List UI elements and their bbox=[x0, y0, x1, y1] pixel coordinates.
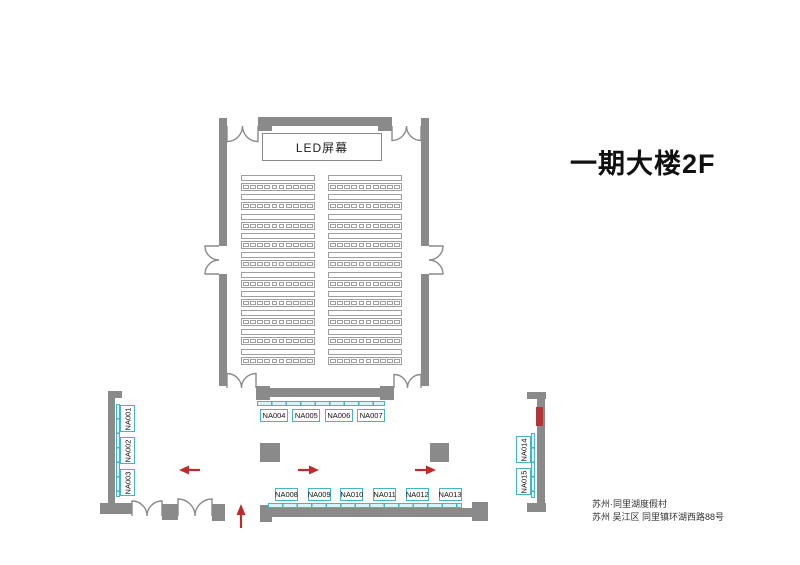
booth-na010: NA010 bbox=[340, 488, 363, 501]
booth-na011: NA011 bbox=[373, 488, 396, 501]
chair bbox=[264, 243, 270, 247]
chair bbox=[366, 185, 372, 189]
hall-wall-top-cap-right bbox=[378, 117, 392, 131]
chair bbox=[257, 204, 263, 208]
chair bbox=[373, 339, 379, 343]
chair bbox=[250, 224, 256, 228]
door-right-middle bbox=[429, 246, 443, 274]
chair bbox=[250, 262, 256, 266]
chair bbox=[300, 282, 306, 286]
chair bbox=[264, 224, 270, 228]
chair bbox=[286, 262, 292, 266]
chair bbox=[293, 359, 299, 363]
chair bbox=[300, 224, 306, 228]
chair bbox=[264, 282, 270, 286]
chair bbox=[394, 359, 400, 363]
chair bbox=[293, 185, 299, 189]
door-top-right bbox=[392, 126, 421, 141]
chair bbox=[279, 185, 285, 189]
chair bbox=[293, 320, 299, 324]
chair bbox=[380, 262, 386, 266]
chair bbox=[373, 282, 379, 286]
seat-table bbox=[241, 194, 315, 200]
chair bbox=[366, 301, 372, 305]
chair bbox=[380, 320, 386, 324]
seat-table bbox=[328, 329, 402, 335]
chair-row bbox=[328, 337, 402, 345]
hall-wall-right-lower bbox=[421, 274, 429, 386]
chair bbox=[344, 185, 350, 189]
chair bbox=[359, 301, 365, 305]
chair bbox=[286, 301, 292, 305]
chair bbox=[307, 243, 313, 247]
chair bbox=[279, 359, 285, 363]
chair-row bbox=[328, 241, 402, 249]
booth-strip-right bbox=[531, 433, 535, 498]
chair bbox=[300, 204, 306, 208]
chair bbox=[344, 339, 350, 343]
concourse-left-wall-cap bbox=[108, 391, 122, 398]
chair bbox=[380, 301, 386, 305]
chair bbox=[387, 320, 393, 324]
chair bbox=[279, 243, 285, 247]
chair bbox=[359, 320, 365, 324]
chair bbox=[286, 320, 292, 324]
chair bbox=[272, 204, 278, 208]
chair bbox=[293, 262, 299, 266]
door-bottom-right bbox=[394, 375, 421, 389]
chair bbox=[337, 339, 343, 343]
chair bbox=[307, 359, 313, 363]
bottom-wall-long bbox=[272, 508, 472, 517]
arrow-left-icon bbox=[179, 466, 200, 475]
booth-strip-top bbox=[257, 401, 385, 406]
chair bbox=[373, 204, 379, 208]
chair-row bbox=[241, 222, 315, 230]
seat-table bbox=[241, 175, 315, 181]
seat-table bbox=[328, 252, 402, 258]
chair bbox=[293, 204, 299, 208]
chair bbox=[344, 359, 350, 363]
chair bbox=[286, 339, 292, 343]
led-screen-label: LED屏幕 bbox=[296, 139, 348, 156]
arrow-right-icon bbox=[298, 466, 319, 475]
chair bbox=[272, 282, 278, 286]
seat-table bbox=[241, 329, 315, 335]
chair bbox=[286, 282, 292, 286]
hall-wall-bottom-cap-left bbox=[256, 386, 270, 400]
chair bbox=[307, 224, 313, 228]
chair bbox=[351, 185, 357, 189]
chair bbox=[394, 243, 400, 247]
chair bbox=[300, 301, 306, 305]
chair bbox=[293, 339, 299, 343]
seat-table bbox=[241, 252, 315, 258]
chair bbox=[394, 262, 400, 266]
chair-row bbox=[328, 222, 402, 230]
seat-table bbox=[241, 214, 315, 220]
seat-table bbox=[328, 214, 402, 220]
chair bbox=[380, 282, 386, 286]
chair bbox=[250, 204, 256, 208]
chair bbox=[351, 282, 357, 286]
booth-na014: NA014 bbox=[516, 436, 531, 463]
chair bbox=[300, 359, 306, 363]
chair bbox=[293, 243, 299, 247]
chair bbox=[337, 320, 343, 324]
chair bbox=[272, 224, 278, 228]
chair bbox=[286, 204, 292, 208]
chair bbox=[366, 339, 372, 343]
chair bbox=[394, 301, 400, 305]
chair bbox=[380, 204, 386, 208]
chair bbox=[351, 320, 357, 324]
chair bbox=[366, 243, 372, 247]
chair bbox=[344, 204, 350, 208]
chair bbox=[330, 204, 336, 208]
chair bbox=[380, 339, 386, 343]
chair bbox=[387, 224, 393, 228]
chair-row bbox=[241, 260, 315, 268]
chair bbox=[257, 339, 263, 343]
chair bbox=[366, 262, 372, 266]
hall-wall-left-upper bbox=[219, 118, 227, 246]
chair bbox=[257, 224, 263, 228]
chair bbox=[272, 243, 278, 247]
bottom-wall-end-block bbox=[472, 502, 488, 521]
chair-row bbox=[328, 280, 402, 288]
booth-na002: NA002 bbox=[120, 437, 135, 464]
door-bottom-left bbox=[227, 374, 256, 389]
chair-row bbox=[328, 260, 402, 268]
chair bbox=[300, 320, 306, 324]
chair bbox=[307, 320, 313, 324]
chair bbox=[286, 185, 292, 189]
chair bbox=[293, 301, 299, 305]
chair bbox=[330, 282, 336, 286]
chair bbox=[307, 301, 313, 305]
address-line-2: 苏州 吴江区 同里镇环湖西路88号 bbox=[592, 511, 724, 524]
chair-row bbox=[241, 357, 315, 365]
chair bbox=[394, 339, 400, 343]
chair bbox=[257, 359, 263, 363]
seat-table bbox=[328, 194, 402, 200]
hall-wall-bottom bbox=[256, 388, 394, 397]
chair-row bbox=[328, 202, 402, 210]
led-screen: LED屏幕 bbox=[262, 133, 382, 161]
chair bbox=[307, 262, 313, 266]
chair bbox=[359, 204, 365, 208]
seat-table bbox=[328, 233, 402, 239]
chair bbox=[243, 185, 249, 189]
door-top-left bbox=[227, 126, 258, 142]
chair bbox=[293, 282, 299, 286]
chair bbox=[394, 204, 400, 208]
chair bbox=[380, 224, 386, 228]
chair bbox=[337, 262, 343, 266]
seat-table bbox=[328, 310, 402, 316]
chair bbox=[272, 320, 278, 324]
chair bbox=[300, 262, 306, 266]
seat-table bbox=[241, 291, 315, 297]
address-block: 苏州·同里湖度假村 苏州 吴江区 同里镇环湖西路88号 bbox=[592, 498, 724, 524]
address-line-1: 苏州·同里湖度假村 bbox=[592, 498, 724, 511]
chair bbox=[366, 224, 372, 228]
bottom-wall-step bbox=[212, 504, 225, 521]
chair bbox=[272, 262, 278, 266]
chair-row bbox=[241, 280, 315, 288]
chair bbox=[330, 224, 336, 228]
chair bbox=[387, 262, 393, 266]
chair bbox=[307, 204, 313, 208]
booth-na001: NA001 bbox=[120, 405, 135, 432]
chair bbox=[373, 301, 379, 305]
chair bbox=[337, 301, 343, 305]
chair bbox=[351, 262, 357, 266]
chair bbox=[337, 243, 343, 247]
seat-table bbox=[241, 310, 315, 316]
chair bbox=[387, 359, 393, 363]
chair bbox=[293, 224, 299, 228]
chair bbox=[250, 243, 256, 247]
chair bbox=[387, 185, 393, 189]
chair bbox=[394, 224, 400, 228]
chair bbox=[373, 224, 379, 228]
chair bbox=[330, 320, 336, 324]
chair-row bbox=[241, 299, 315, 307]
chair bbox=[264, 320, 270, 324]
chair bbox=[366, 320, 372, 324]
bottom-wall-block-a bbox=[162, 504, 178, 520]
pillar-right bbox=[430, 443, 449, 462]
booth-na004: NA004 bbox=[260, 409, 288, 422]
chair bbox=[272, 359, 278, 363]
chair bbox=[366, 204, 372, 208]
chair bbox=[264, 339, 270, 343]
arrow-right-icon bbox=[415, 466, 436, 475]
chair bbox=[351, 359, 357, 363]
chair-row bbox=[241, 202, 315, 210]
chair bbox=[351, 243, 357, 247]
booth-na012: NA012 bbox=[406, 488, 429, 501]
chair bbox=[250, 282, 256, 286]
chair bbox=[359, 243, 365, 247]
door-concourse-a bbox=[132, 501, 162, 516]
chair bbox=[257, 320, 263, 324]
chair bbox=[387, 204, 393, 208]
chair bbox=[300, 243, 306, 247]
chair-row bbox=[241, 337, 315, 345]
chair bbox=[330, 359, 336, 363]
booth-na008: NA008 bbox=[275, 488, 298, 501]
chair bbox=[344, 282, 350, 286]
floor-plan: LED屏幕 NA001NA002NA003 NA004NA005NA006NA0… bbox=[0, 0, 800, 565]
hall-wall-right-upper bbox=[421, 118, 429, 246]
concourse-left-wall bbox=[108, 391, 115, 506]
chair bbox=[330, 262, 336, 266]
booth-na006: NA006 bbox=[325, 409, 353, 422]
red-wall-marker bbox=[536, 407, 543, 426]
booth-label: NA002 bbox=[123, 439, 132, 462]
seat-table bbox=[328, 175, 402, 181]
chair bbox=[380, 185, 386, 189]
chair-row bbox=[241, 241, 315, 249]
chair bbox=[250, 185, 256, 189]
chair bbox=[257, 243, 263, 247]
chair-row bbox=[328, 183, 402, 191]
booth-na013: NA013 bbox=[439, 488, 462, 501]
chair bbox=[337, 282, 343, 286]
seat-table bbox=[328, 349, 402, 355]
chair bbox=[380, 359, 386, 363]
chair bbox=[337, 359, 343, 363]
seat-table bbox=[328, 291, 402, 297]
booth-na009: NA009 bbox=[308, 488, 331, 501]
chair bbox=[286, 224, 292, 228]
chair bbox=[264, 204, 270, 208]
chair bbox=[250, 301, 256, 305]
seat-table bbox=[241, 272, 315, 278]
chair bbox=[250, 320, 256, 324]
chair bbox=[380, 243, 386, 247]
chair bbox=[307, 185, 313, 189]
chair bbox=[344, 301, 350, 305]
chair bbox=[330, 339, 336, 343]
hall-wall-top bbox=[258, 117, 392, 126]
booth-na005: NA005 bbox=[292, 409, 320, 422]
chair bbox=[330, 301, 336, 305]
concourse-left-wall-corner bbox=[100, 503, 132, 514]
seat-table bbox=[241, 349, 315, 355]
chair bbox=[359, 262, 365, 266]
chair bbox=[279, 320, 285, 324]
booth-label: NA003 bbox=[123, 471, 132, 494]
chair bbox=[257, 185, 263, 189]
hall-wall-bottom-cap-right bbox=[380, 386, 394, 400]
page-title: 一期大楼2F bbox=[570, 142, 716, 181]
chair bbox=[344, 243, 350, 247]
chair bbox=[359, 282, 365, 286]
chair bbox=[344, 262, 350, 266]
chair bbox=[264, 301, 270, 305]
chair bbox=[351, 301, 357, 305]
chair-row bbox=[328, 318, 402, 326]
chair bbox=[272, 185, 278, 189]
chair bbox=[366, 359, 372, 363]
chair bbox=[264, 262, 270, 266]
chair bbox=[373, 243, 379, 247]
chair bbox=[243, 262, 249, 266]
booth-na003: NA003 bbox=[120, 469, 135, 496]
chair bbox=[337, 224, 343, 228]
chair bbox=[279, 224, 285, 228]
concourse-right-wall-cap-bottom bbox=[527, 503, 546, 512]
chair bbox=[344, 224, 350, 228]
chair bbox=[243, 224, 249, 228]
chair bbox=[351, 224, 357, 228]
chair bbox=[394, 282, 400, 286]
chair bbox=[257, 301, 263, 305]
chair bbox=[279, 282, 285, 286]
chair bbox=[373, 359, 379, 363]
chair bbox=[264, 185, 270, 189]
chair bbox=[300, 339, 306, 343]
chair bbox=[387, 282, 393, 286]
chair bbox=[359, 359, 365, 363]
chair bbox=[279, 301, 285, 305]
chair bbox=[373, 185, 379, 189]
booth-label: NA015 bbox=[519, 470, 528, 493]
seat-table bbox=[328, 272, 402, 278]
booth-na007: NA007 bbox=[357, 409, 385, 422]
booth-label: NA001 bbox=[123, 407, 132, 430]
chair bbox=[394, 320, 400, 324]
chair bbox=[387, 301, 393, 305]
chair bbox=[394, 185, 400, 189]
chair-row bbox=[328, 357, 402, 365]
chair bbox=[359, 339, 365, 343]
arrow-up-icon bbox=[237, 504, 246, 528]
chair bbox=[243, 359, 249, 363]
chair bbox=[279, 204, 285, 208]
booth-na015: NA015 bbox=[516, 468, 531, 495]
chair bbox=[330, 243, 336, 247]
chair bbox=[337, 204, 343, 208]
chair bbox=[387, 339, 393, 343]
chair bbox=[243, 282, 249, 286]
chair bbox=[344, 320, 350, 324]
chair-row bbox=[328, 299, 402, 307]
chair bbox=[366, 282, 372, 286]
chair bbox=[272, 339, 278, 343]
chair bbox=[307, 339, 313, 343]
chair bbox=[264, 359, 270, 363]
chair bbox=[257, 262, 263, 266]
booth-strip-bottom bbox=[268, 503, 462, 508]
booth-label: NA014 bbox=[519, 438, 528, 461]
chair bbox=[279, 262, 285, 266]
chair bbox=[272, 301, 278, 305]
chair bbox=[250, 339, 256, 343]
chair bbox=[243, 243, 249, 247]
chair bbox=[351, 339, 357, 343]
hall-wall-left-lower bbox=[219, 274, 227, 386]
chair bbox=[243, 320, 249, 324]
chair bbox=[279, 339, 285, 343]
door-concourse-b bbox=[178, 499, 212, 516]
chair bbox=[243, 301, 249, 305]
seat-table bbox=[241, 233, 315, 239]
chair bbox=[359, 224, 365, 228]
chair bbox=[286, 359, 292, 363]
chair bbox=[330, 185, 336, 189]
chair bbox=[373, 320, 379, 324]
chair bbox=[359, 185, 365, 189]
door-left-middle bbox=[205, 246, 219, 274]
pillar-left bbox=[260, 443, 280, 462]
chair bbox=[373, 262, 379, 266]
chair-row bbox=[241, 318, 315, 326]
chair bbox=[351, 204, 357, 208]
chair-row bbox=[241, 183, 315, 191]
chair bbox=[387, 243, 393, 247]
chair bbox=[307, 282, 313, 286]
chair bbox=[286, 243, 292, 247]
chair bbox=[337, 185, 343, 189]
hall-wall-top-cap-left bbox=[258, 117, 272, 131]
chair bbox=[243, 339, 249, 343]
chair bbox=[257, 282, 263, 286]
